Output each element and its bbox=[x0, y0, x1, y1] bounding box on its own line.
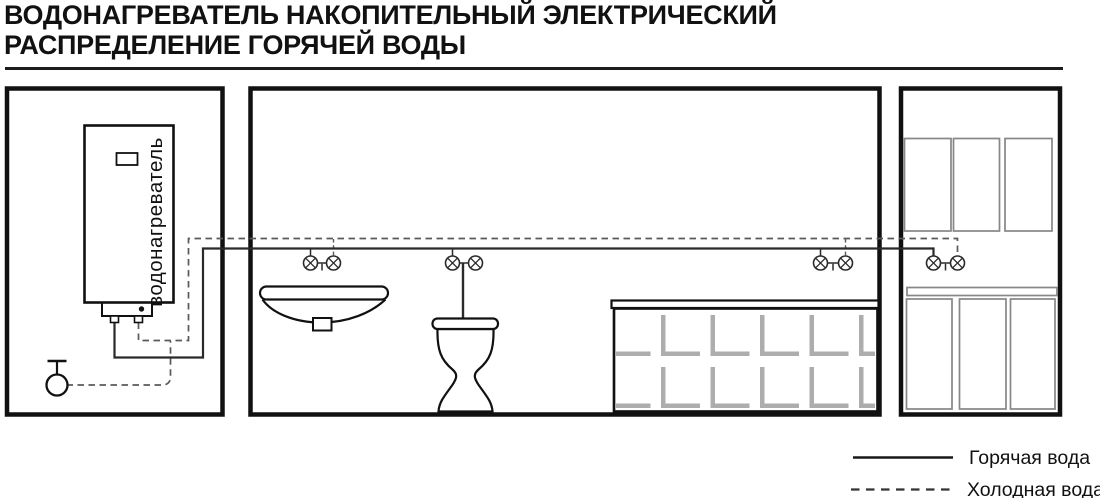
cold-pipe-valve-branch bbox=[67, 341, 171, 385]
legend-hot-label: Горячая вода bbox=[969, 447, 1090, 470]
toilet bbox=[433, 264, 499, 412]
washbasin-sink bbox=[260, 287, 388, 331]
heater-hot-outlet bbox=[111, 316, 119, 323]
toilet-bowl bbox=[437, 329, 493, 412]
sink-rim bbox=[260, 287, 388, 300]
upper-cabinet-3 bbox=[1005, 139, 1052, 232]
faucet-valve-pairs bbox=[304, 256, 965, 271]
legend-line-samples bbox=[851, 458, 953, 490]
lower-cabinet-1 bbox=[907, 299, 953, 409]
kitchen-furniture bbox=[905, 139, 1058, 410]
heater-cold-inlet bbox=[135, 316, 143, 323]
heater-indicator-dot bbox=[139, 306, 144, 311]
lower-cabinet-2 bbox=[960, 299, 1007, 409]
sink-cold-valve-icon bbox=[327, 256, 341, 270]
toilet-valve-right-icon bbox=[469, 256, 483, 270]
bath-hot-valve-icon bbox=[814, 256, 828, 270]
lower-cabinet-3 bbox=[1011, 299, 1056, 409]
kitchen-cold-valve-icon bbox=[951, 256, 965, 270]
shutoff-valve bbox=[47, 361, 68, 396]
heater-display bbox=[117, 153, 138, 165]
upper-cabinet-2 bbox=[954, 139, 1000, 232]
upper-cabinet-1 bbox=[905, 139, 952, 232]
kitchen-hot-valve-icon bbox=[927, 256, 941, 270]
toilet-rim bbox=[433, 319, 499, 330]
bathtub bbox=[612, 301, 879, 412]
schematic-page: ВОДОНАГРЕВАТЕЛЬ НАКОПИТЕЛЬНЫЙ ЭЛЕКТРИЧЕС… bbox=[0, 0, 1100, 498]
bath-cold-valve-icon bbox=[839, 256, 853, 270]
bathtub-rim bbox=[612, 301, 879, 309]
toilet-valve-left-icon bbox=[446, 256, 460, 270]
countertop bbox=[907, 288, 1057, 296]
legend-cold-label: Холодная вода bbox=[967, 479, 1100, 498]
sink-hot-valve-icon bbox=[304, 256, 318, 270]
bathtub-tile-pattern bbox=[616, 312, 875, 409]
heater-label: водонагреватель bbox=[144, 137, 168, 307]
sink-drain bbox=[313, 318, 332, 331]
shutoff-valve-body bbox=[47, 375, 68, 396]
